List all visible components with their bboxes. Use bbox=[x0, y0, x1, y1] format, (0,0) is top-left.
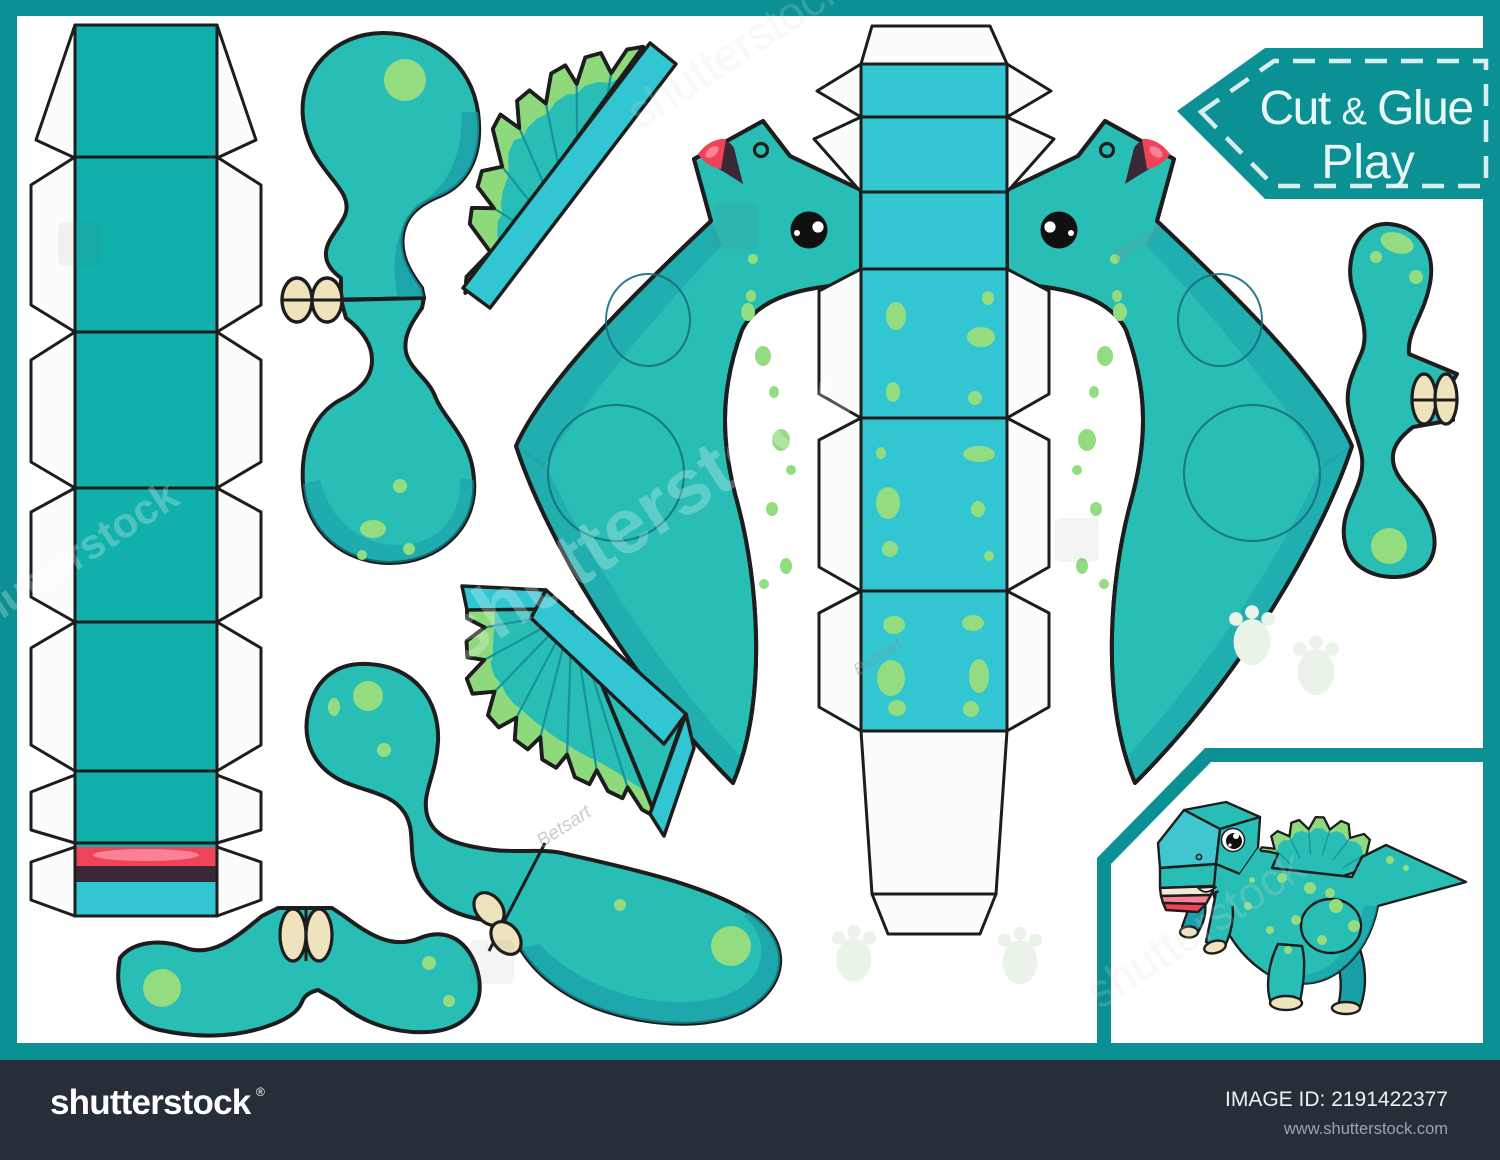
svg-text:®: ® bbox=[256, 1085, 265, 1099]
svg-text:IMAGE ID: 2191422377: IMAGE ID: 2191422377 bbox=[1225, 1088, 1448, 1111]
svg-text:www.shutterstock.com: www.shutterstock.com bbox=[1283, 1120, 1448, 1138]
svg-text:Play: Play bbox=[1321, 136, 1414, 189]
svg-text:Cut & Glue: Cut & Glue bbox=[1259, 82, 1472, 135]
svg-text:shutterstock: shutterstock bbox=[50, 1083, 252, 1122]
